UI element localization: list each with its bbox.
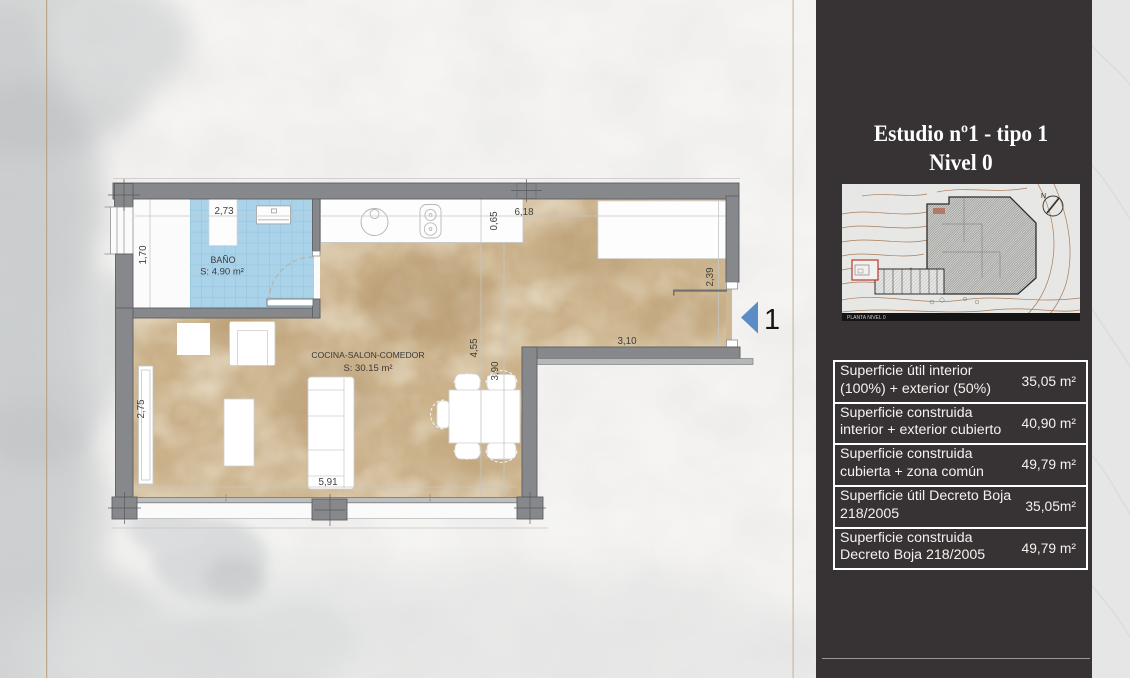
svg-text:2,75: 2,75 (136, 399, 147, 419)
svg-text:3,10: 3,10 (617, 336, 637, 347)
svg-text:2,73: 2,73 (214, 206, 234, 217)
svg-text:2,39: 2,39 (705, 267, 716, 286)
svg-text:BAÑO: BAÑO (211, 255, 236, 265)
svg-text:0,65: 0,65 (489, 211, 500, 231)
svg-text:3,90: 3,90 (490, 361, 501, 381)
svg-text:1: 1 (764, 304, 780, 336)
svg-text:5,91: 5,91 (318, 477, 337, 488)
svg-text:S: 30.15 m²: S: 30.15 m² (343, 363, 392, 374)
svg-text:N: N (1041, 193, 1046, 200)
svg-text:S: 4.90 m²: S: 4.90 m² (200, 267, 244, 278)
svg-text:COCINA-SALON-COMEDOR: COCINA-SALON-COMEDOR (311, 350, 424, 360)
svg-text:1,70: 1,70 (138, 245, 149, 265)
svg-text:4,55: 4,55 (469, 338, 480, 358)
svg-text:PLANTA NIVEL 0: PLANTA NIVEL 0 (847, 315, 886, 321)
svg-text:6,18: 6,18 (514, 207, 534, 218)
